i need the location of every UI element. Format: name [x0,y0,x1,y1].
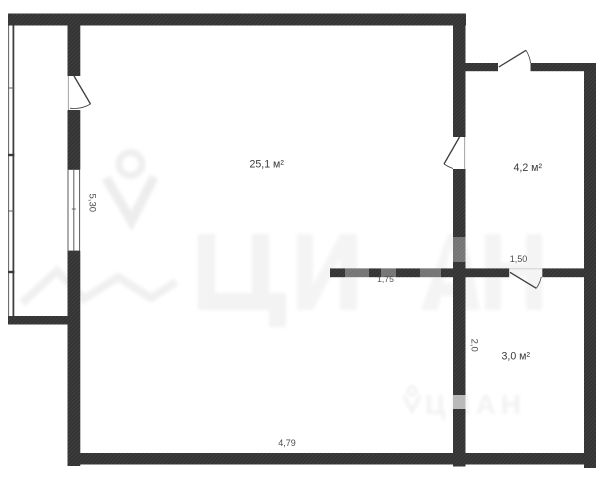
svg-text:25,1 м²: 25,1 м² [250,159,285,171]
svg-text:1,50: 1,50 [510,254,528,264]
svg-text:4,2 м²: 4,2 м² [514,162,543,174]
svg-text:4,79: 4,79 [278,438,296,448]
svg-text:2,0: 2,0 [468,339,479,352]
svg-text:3,0 м²: 3,0 м² [502,351,531,363]
svg-text:5,30: 5,30 [86,194,97,213]
svg-text:1,75: 1,75 [377,274,394,284]
